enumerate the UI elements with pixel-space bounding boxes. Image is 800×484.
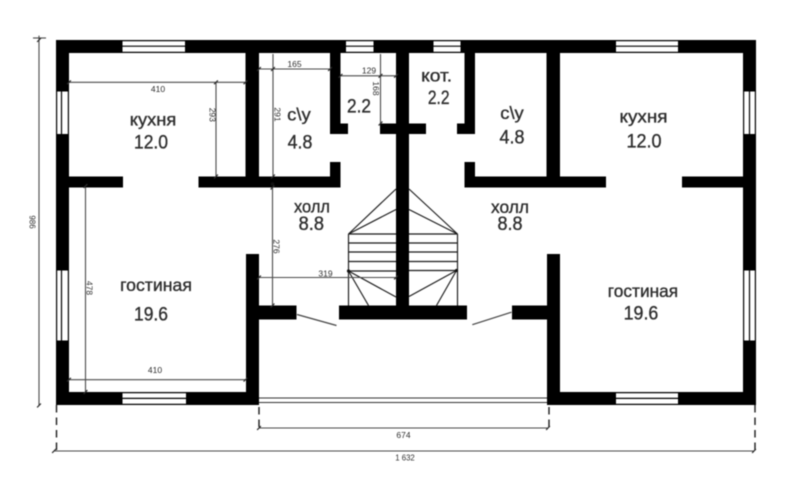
svg-text:2.2: 2.2 <box>428 87 450 109</box>
svg-text:168: 168 <box>371 81 381 95</box>
svg-text:410: 410 <box>148 365 162 375</box>
svg-text:291: 291 <box>273 107 283 121</box>
svg-text:с\у: с\у <box>500 103 524 123</box>
svg-text:8.8: 8.8 <box>299 213 324 235</box>
svg-text:кухня: кухня <box>130 110 177 130</box>
svg-text:19.6: 19.6 <box>624 302 659 324</box>
svg-text:гостиная: гостиная <box>120 275 192 295</box>
svg-text:с\у: с\у <box>287 105 311 125</box>
svg-text:276: 276 <box>272 239 282 253</box>
svg-text:410: 410 <box>151 84 165 94</box>
svg-text:кухня: кухня <box>620 107 668 127</box>
svg-text:2.2: 2.2 <box>347 95 371 117</box>
svg-text:674: 674 <box>396 430 410 440</box>
svg-text:986: 986 <box>28 215 37 229</box>
svg-text:гостиная: гостиная <box>608 281 678 301</box>
svg-text:293: 293 <box>208 108 218 122</box>
svg-text:319: 319 <box>318 269 332 279</box>
svg-text:кот.: кот. <box>421 66 452 86</box>
svg-text:4.8: 4.8 <box>288 131 313 153</box>
svg-text:478: 478 <box>85 281 95 295</box>
svg-text:19.6: 19.6 <box>134 303 168 325</box>
svg-text:129: 129 <box>362 65 376 75</box>
svg-text:165: 165 <box>287 59 301 69</box>
svg-text:12.0: 12.0 <box>627 131 662 153</box>
svg-text:4.8: 4.8 <box>500 126 525 148</box>
svg-text:12.0: 12.0 <box>134 132 168 154</box>
svg-text:1 632: 1 632 <box>395 453 415 463</box>
svg-text:8.8: 8.8 <box>498 213 523 235</box>
